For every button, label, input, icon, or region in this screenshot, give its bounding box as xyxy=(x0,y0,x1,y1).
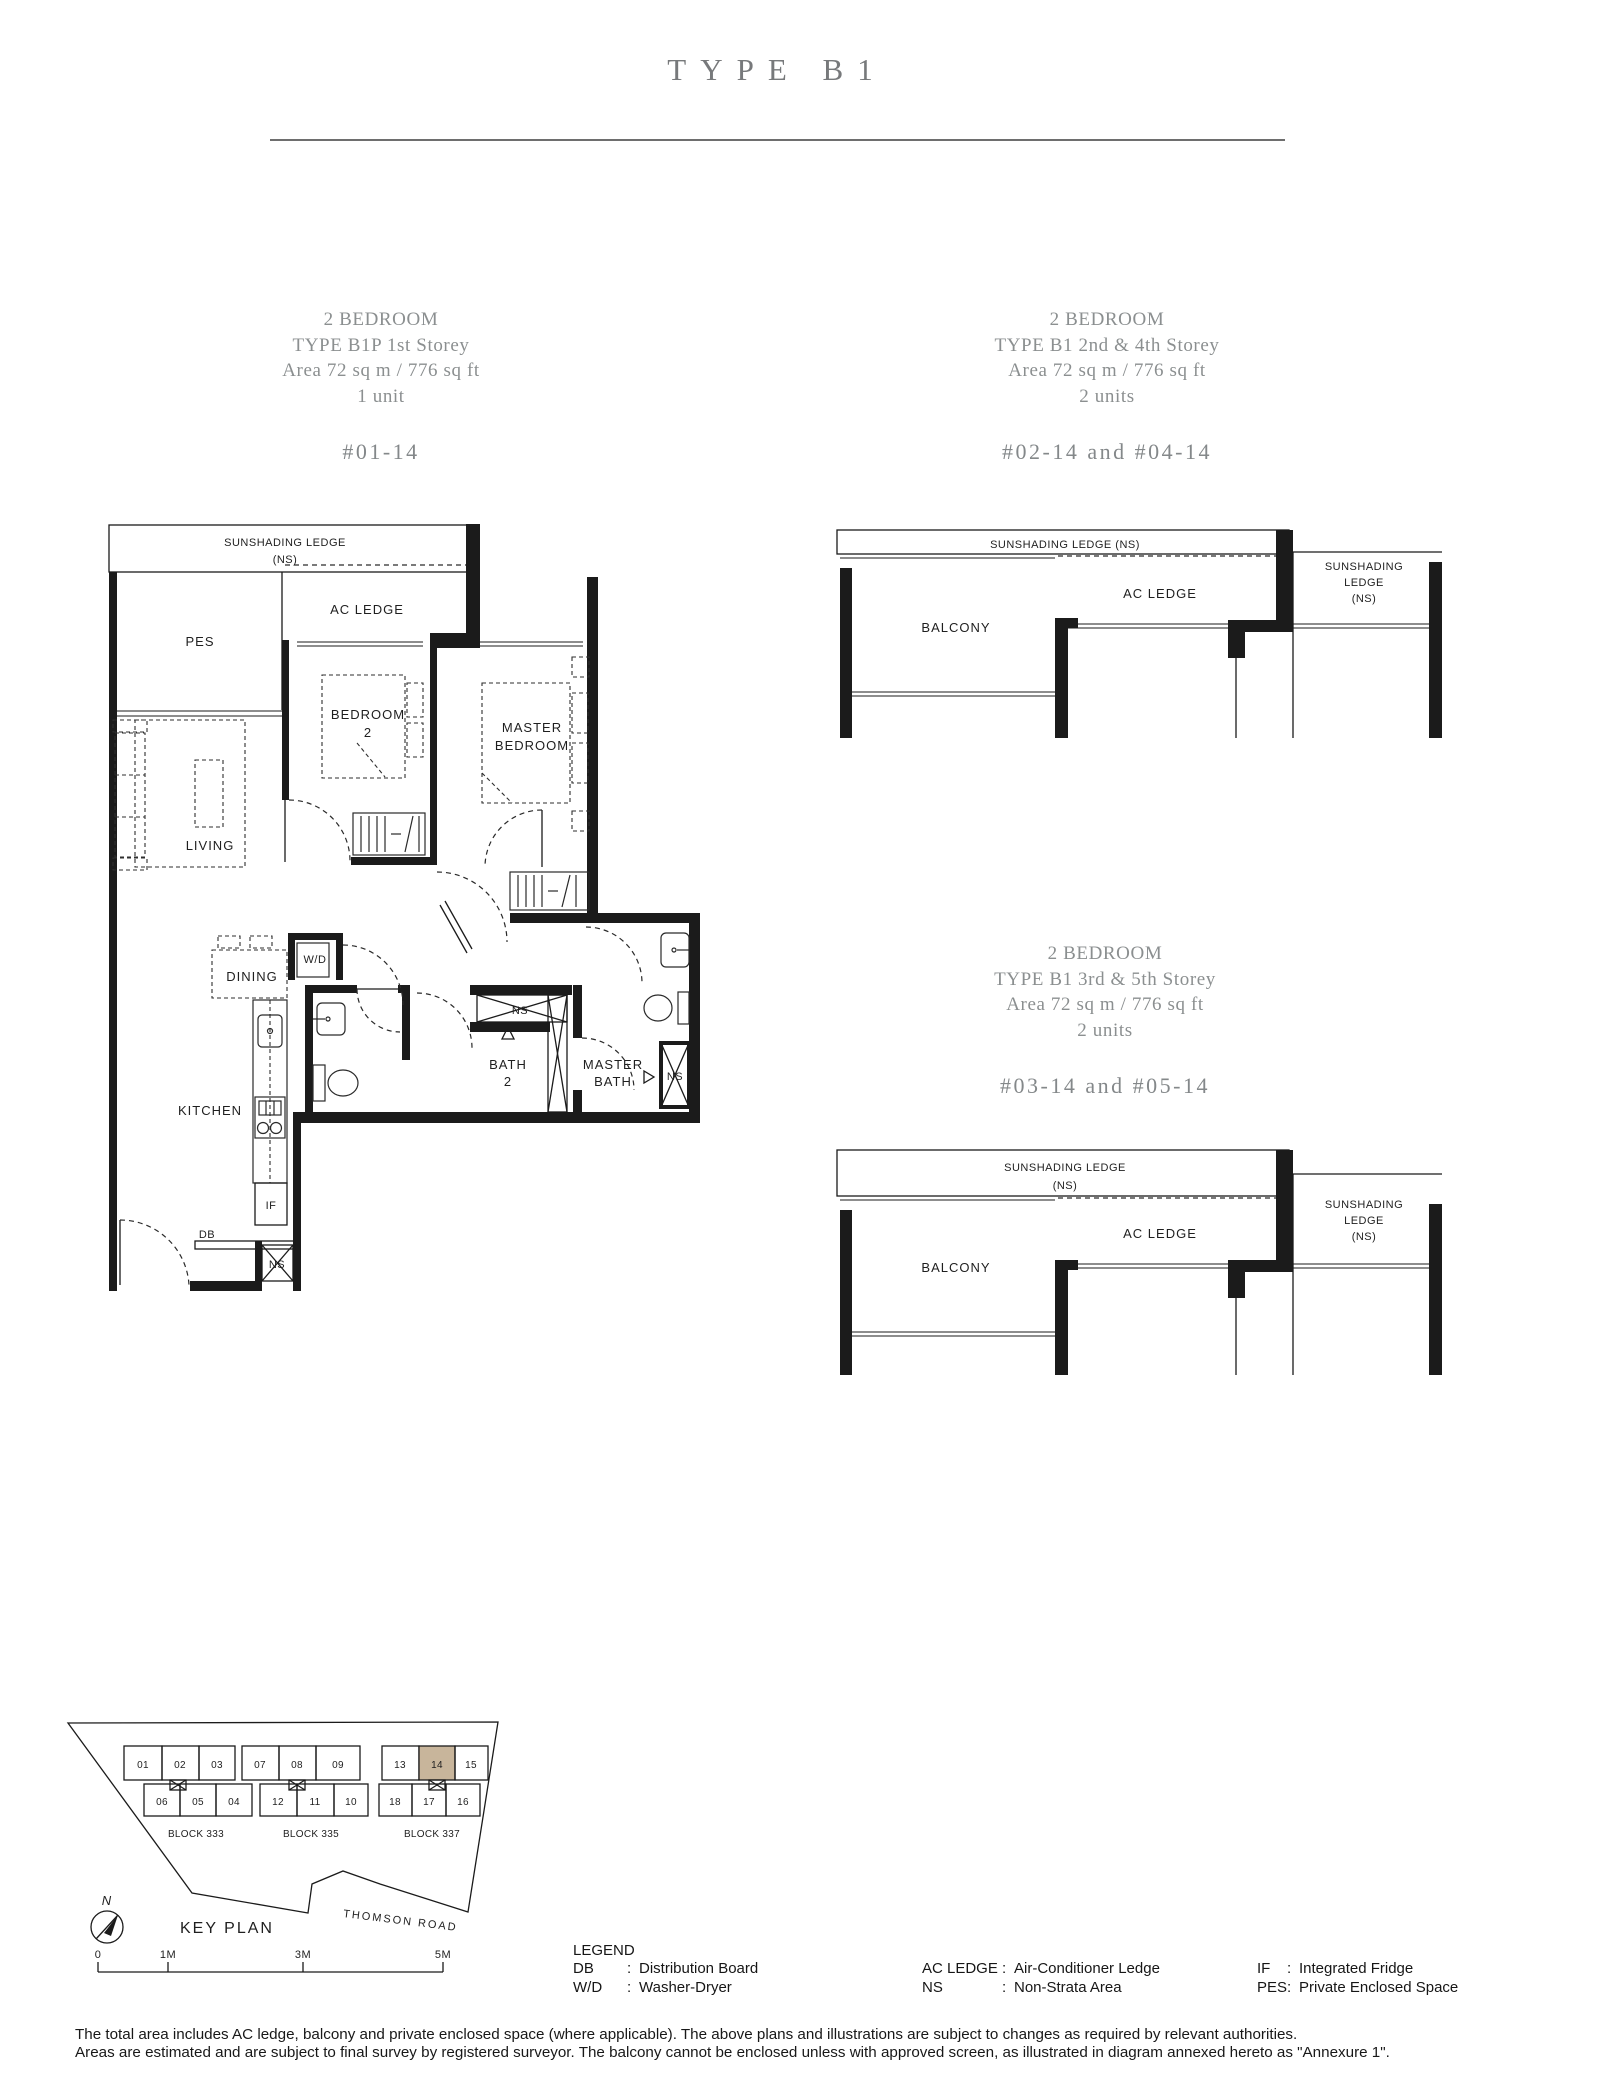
floorplan-page: TYPE B1 2 BEDROOM TYPE B1P 1st Storey Ar… xyxy=(0,0,1600,2090)
keyplan-unit-11: 11 xyxy=(310,1797,321,1808)
disclaimer-line1: The total area includes AC ledge, balcon… xyxy=(75,2026,1545,2044)
keyplan-unit-09: 09 xyxy=(332,1760,344,1771)
keyplan-title: KEY PLAN xyxy=(180,1920,274,1937)
keyplan-unit-03: 03 xyxy=(211,1760,223,1771)
keyplan-block-333: BLOCK 333 xyxy=(168,1829,224,1840)
heading-b1-24-line3: Area 72 sq m / 776 sq ft xyxy=(897,358,1317,384)
legend-def-ns: Non-Strata Area xyxy=(1014,1979,1122,1996)
master-bedroom-label-2: BEDROOM xyxy=(495,738,569,753)
legend-def-pes: Private Enclosed Space xyxy=(1299,1979,1458,1996)
legend-def-wd: Washer-Dryer xyxy=(639,1979,732,1996)
keyplan-unit-18: 18 xyxy=(389,1797,401,1808)
keyplan-unit-04: 04 xyxy=(228,1797,240,1808)
legend-term-wd: W/D xyxy=(573,1979,602,1996)
dining-label: DINING xyxy=(226,969,278,984)
title-rule xyxy=(270,139,1285,141)
legend-colon: : xyxy=(1287,1960,1291,1977)
legend: LEGEND DB : Distribution Board W/D : Was… xyxy=(565,1942,1595,2002)
section2-acledge-label: AC LEDGE xyxy=(1123,1226,1197,1241)
sunshading-ledge-label: SUNSHADING LEDGE xyxy=(224,537,346,549)
legend-def-if: Integrated Fridge xyxy=(1299,1960,1413,1977)
scale-5m: 5M xyxy=(435,1949,451,1961)
legend-colon: : xyxy=(1002,1979,1006,1996)
master-bath-label-2: BATH xyxy=(594,1074,632,1089)
heading-b1-35-line4: 2 units xyxy=(895,1018,1315,1044)
ns-label-strip: NS xyxy=(512,1005,528,1017)
section-plan-2nd-4th: SUNSHADING LEDGE (NS) BALCONY AC LEDGE S… xyxy=(820,520,1500,770)
keyplan-unit-08: 08 xyxy=(291,1760,303,1771)
heading-b1p-line1: 2 BEDROOM xyxy=(171,307,591,333)
unit-number-b1-24: #02-14 and #04-14 xyxy=(897,439,1317,465)
keyplan-unit-15: 15 xyxy=(465,1760,477,1771)
keyplan-unit-12: 12 xyxy=(272,1797,284,1808)
unit-number-b1p: #01-14 xyxy=(171,439,591,465)
legend-def-acledge: Air-Conditioner Ledge xyxy=(1014,1960,1160,1977)
legend-def-db: Distribution Board xyxy=(639,1960,758,1977)
main-floorplan: SUNSHADING LEDGE (NS) PES xyxy=(95,515,725,1315)
key-plan: 01 02 03 06 05 04 BLOCK 333 07 08 09 12 … xyxy=(50,1700,510,2000)
keyplan-block-337: BLOCK 337 xyxy=(404,1829,460,1840)
section1-right-sunshading-2: LEDGE xyxy=(1344,577,1384,589)
pes-label: PES xyxy=(185,634,214,649)
heading-b1-35: 2 BEDROOM TYPE B1 3rd & 5th Storey Area … xyxy=(895,941,1315,1099)
section1-right-sunshading-3: (NS) xyxy=(1352,593,1377,605)
section2-right-sunshading-1: SUNSHADING xyxy=(1325,1199,1403,1211)
heading-b1-35-line2: TYPE B1 3rd & 5th Storey xyxy=(895,967,1315,993)
master-bedroom-label-1: MASTER xyxy=(502,720,562,735)
unit-number-b1-35: #03-14 and #05-14 xyxy=(895,1073,1315,1099)
sunshading-ns-label: (NS) xyxy=(273,554,298,566)
heading-b1p: 2 BEDROOM TYPE B1P 1st Storey Area 72 sq… xyxy=(171,307,591,465)
keyplan-unit-05: 05 xyxy=(192,1797,204,1808)
heading-b1-24-line1: 2 BEDROOM xyxy=(897,307,1317,333)
section2-right-sunshading-3: (NS) xyxy=(1352,1231,1377,1243)
db-label: DB xyxy=(199,1229,215,1241)
section1-right-sunshading-1: SUNSHADING xyxy=(1325,561,1403,573)
keyplan-unit-07: 07 xyxy=(254,1760,266,1771)
heading-b1-24-line4: 2 units xyxy=(897,384,1317,410)
kitchen-label: KITCHEN xyxy=(178,1103,242,1118)
ac-ledge-label: AC LEDGE xyxy=(330,602,404,617)
section-plan-3rd-5th: SUNSHADING LEDGE (NS) BALCONY AC LEDGE S… xyxy=(820,1140,1500,1400)
wd-label: W/D xyxy=(304,954,327,966)
page-title: TYPE B1 xyxy=(277,52,1277,88)
heading-b1-24: 2 BEDROOM TYPE B1 2nd & 4th Storey Area … xyxy=(897,307,1317,465)
bedroom2-label-1: BEDROOM xyxy=(331,707,405,722)
legend-colon: : xyxy=(1002,1960,1006,1977)
keyplan-unit-06: 06 xyxy=(156,1797,168,1808)
if-label: IF xyxy=(266,1200,277,1212)
living-label: LIVING xyxy=(186,838,235,853)
legend-term-pes: PES xyxy=(1257,1979,1287,1996)
section1-sunshading-label: SUNSHADING LEDGE (NS) xyxy=(990,539,1140,551)
master-bath-label-1: MASTER xyxy=(583,1057,643,1072)
heading-b1p-line3: Area 72 sq m / 776 sq ft xyxy=(171,358,591,384)
ns-label-masterbath: NS xyxy=(667,1071,683,1083)
keyplan-block-335: BLOCK 335 xyxy=(283,1829,339,1840)
keyplan-unit-10: 10 xyxy=(345,1797,357,1808)
heading-b1-35-line1: 2 BEDROOM xyxy=(895,941,1315,967)
heading-b1-24-line2: TYPE B1 2nd & 4th Storey xyxy=(897,333,1317,359)
legend-colon: : xyxy=(627,1979,631,1996)
section1-acledge-label: AC LEDGE xyxy=(1123,586,1197,601)
keyplan-unit-13: 13 xyxy=(394,1760,406,1771)
disclaimer: The total area includes AC ledge, balcon… xyxy=(75,2026,1545,2062)
keyplan-unit-14: 14 xyxy=(431,1760,443,1771)
keyplan-unit-16: 16 xyxy=(457,1797,469,1808)
thomson-road-label: THOMSON ROAD xyxy=(343,1908,459,1934)
legend-term-if: IF xyxy=(1257,1960,1270,1977)
bedroom2-label-2: 2 xyxy=(364,725,372,740)
heading-b1-35-line3: Area 72 sq m / 776 sq ft xyxy=(895,992,1315,1018)
scale-0: 0 xyxy=(95,1949,102,1961)
legend-colon: : xyxy=(1287,1979,1291,1996)
heading-b1p-line2: TYPE B1P 1st Storey xyxy=(171,333,591,359)
disclaimer-line2: Areas are estimated and are subject to f… xyxy=(75,2044,1545,2062)
section2-right-sunshading-2: LEDGE xyxy=(1344,1215,1384,1227)
bath2-label-1: BATH xyxy=(489,1057,527,1072)
legend-title: LEGEND xyxy=(573,1942,635,1959)
heading-b1p-line4: 1 unit xyxy=(171,384,591,410)
ns-label-bottom: NS xyxy=(269,1259,285,1271)
legend-colon: : xyxy=(627,1960,631,1977)
compass-north-label: N xyxy=(102,1893,112,1908)
keyplan-unit-17: 17 xyxy=(423,1797,435,1808)
section2-sunshading-label-2: (NS) xyxy=(1053,1180,1078,1192)
section1-balcony-label: BALCONY xyxy=(921,620,990,635)
keyplan-unit-02: 02 xyxy=(174,1760,186,1771)
section2-sunshading-label-1: SUNSHADING LEDGE xyxy=(1004,1162,1126,1174)
legend-term-db: DB xyxy=(573,1960,594,1977)
keyplan-unit-01: 01 xyxy=(137,1760,149,1771)
legend-term-ns: NS xyxy=(922,1979,943,1996)
section2-balcony-label: BALCONY xyxy=(921,1260,990,1275)
legend-term-acledge: AC LEDGE xyxy=(922,1960,998,1977)
scale-3m: 3M xyxy=(295,1949,311,1961)
bath2-label-2: 2 xyxy=(504,1074,512,1089)
scale-1m: 1M xyxy=(160,1949,176,1961)
